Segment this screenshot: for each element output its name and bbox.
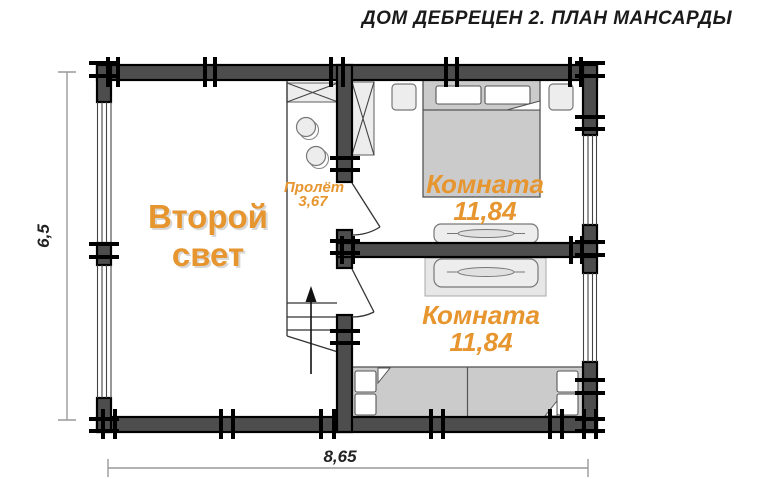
room-label-bedroom-bottom: Комната 11,84 xyxy=(395,302,567,356)
room-name: Комната xyxy=(399,171,571,198)
stairwell-label: Пролёт 3,67 xyxy=(284,181,342,209)
dimension-line-vertical xyxy=(58,72,76,420)
window-right-lower xyxy=(584,273,597,362)
dresser-symbol xyxy=(434,224,538,243)
floor-plan-page: ДОМ ДЕБРЕЦЕН 2. ПЛАН МАНСАРДЫ Второй све… xyxy=(0,0,758,502)
room-name: Комната xyxy=(395,302,567,329)
stairwell-span-value: 3,67 xyxy=(284,195,342,209)
window-right-upper xyxy=(584,135,597,225)
dresser-symbol xyxy=(434,259,538,287)
nightstand-symbol xyxy=(392,84,416,110)
height-dimension-value: 6,5 xyxy=(34,206,54,266)
wardrobe-hatched-symbol-vertical xyxy=(352,82,374,155)
window-left-upper xyxy=(98,102,112,243)
round-stool-symbol xyxy=(297,118,319,140)
window-left-lower xyxy=(98,265,112,398)
nightstand-symbol xyxy=(549,84,573,110)
room-label-bedroom-top: Комната 11,84 xyxy=(399,171,571,225)
page-title: ДОМ ДЕБРЕЦЕН 2. ПЛАН МАНСАРДЫ xyxy=(346,8,748,30)
door-swing-symbol xyxy=(352,183,380,235)
width-dimension-value: 8,65 xyxy=(300,447,380,467)
room-area-value: 11,84 xyxy=(399,198,571,225)
floor-plan-drawing xyxy=(0,0,758,502)
room-label-second-light: Второй свет xyxy=(137,198,279,274)
room-area-value: 11,84 xyxy=(395,329,567,356)
door-swing-symbol xyxy=(352,269,374,317)
round-stool-symbol xyxy=(307,147,329,169)
